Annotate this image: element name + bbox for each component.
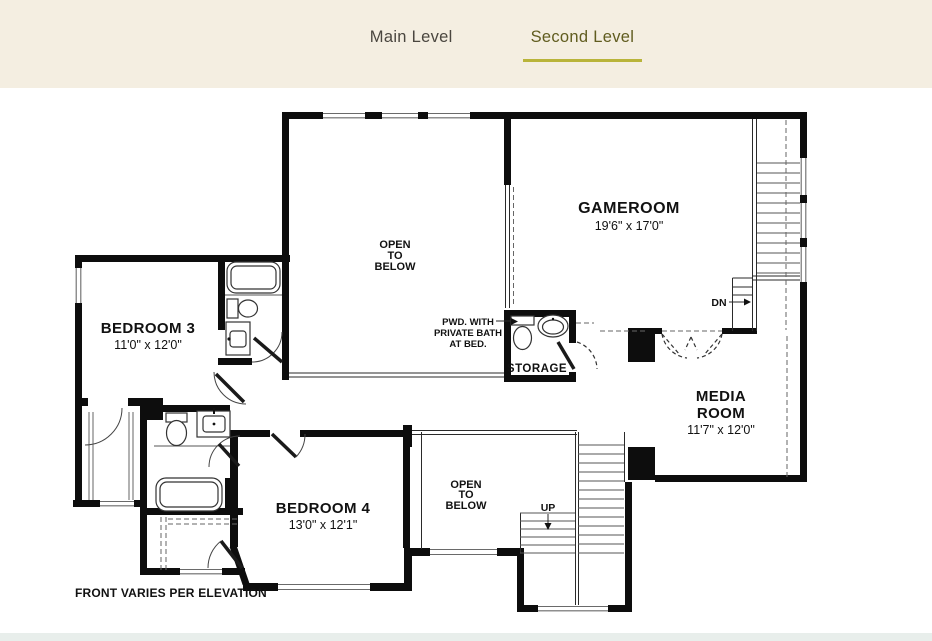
pwd-note-1: PWD. WITH — [442, 317, 494, 328]
dn-label: DN — [711, 297, 726, 309]
level-tabs: Main Level Second Level — [36, 0, 932, 88]
room-dims-gameroom: 19'6" x 17'0" — [595, 219, 664, 233]
room-label-bedroom4: BEDROOM 4 — [276, 500, 371, 517]
tab-second-level[interactable]: Second Level — [523, 0, 643, 62]
front-elevation-note: FRONT VARIES PER ELEVATION — [75, 586, 267, 600]
pwd-note-2: PRIVATE BATH — [434, 328, 502, 339]
windows — [76, 114, 806, 613]
room-dims-bedroom3: 11'0" x 12'0" — [114, 338, 182, 352]
room-label-bedroom3: BEDROOM 3 — [101, 320, 195, 337]
room-dims-media: 11'7" x 12'0" — [687, 423, 755, 437]
room-label-storage: STORAGE — [507, 363, 567, 375]
tab-main-level[interactable]: Main Level — [362, 0, 461, 62]
stairs-center — [520, 432, 625, 605]
room-label-media-2: ROOM — [697, 405, 745, 422]
up-label: UP — [541, 502, 556, 514]
open-below-lower-3: BELOW — [446, 500, 488, 512]
floor-plan-viewer: Main Level Second Level — [0, 0, 932, 641]
pwd-note-3: AT BED. — [449, 339, 486, 350]
walls — [73, 112, 807, 612]
footer-strip — [0, 633, 932, 641]
room-label-gameroom: GAMEROOM — [578, 200, 680, 217]
room-dims-bedroom4: 13'0" x 12'1" — [289, 518, 358, 532]
open-below-upper-3: BELOW — [375, 261, 417, 273]
dn-arrow-icon — [744, 299, 751, 306]
stairs-upper-right — [733, 119, 801, 331]
floor-plan: GAMEROOM 19'6" x 17'0" OPEN TO BELOW BED… — [0, 88, 932, 633]
room-label-media-1: MEDIA — [696, 388, 746, 405]
toilet-icon — [227, 299, 238, 318]
level-tab-bar: Main Level Second Level — [0, 0, 932, 88]
